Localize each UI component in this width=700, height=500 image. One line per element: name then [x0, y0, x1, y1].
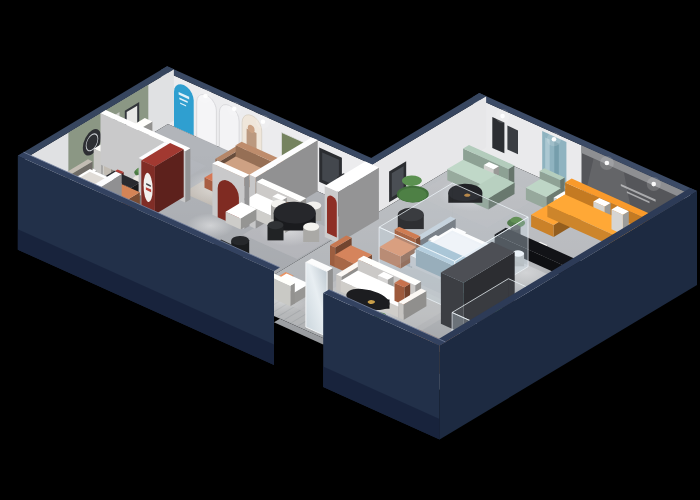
spotlight-glow	[232, 107, 237, 112]
white-sofa-arm-east-south	[398, 302, 403, 320]
blue-display-arch	[174, 84, 194, 135]
spotlight-glow	[203, 94, 208, 99]
red-arch-display	[327, 196, 337, 238]
terracotta-armchair-back-south	[330, 245, 335, 267]
floorplan-svg	[0, 0, 700, 500]
partition-tan-south-a-east	[185, 148, 190, 202]
spotlight-glow	[651, 182, 656, 187]
isometric-floorplan-scene: 3D isometric cutaway floor plan renderin…	[0, 0, 700, 500]
spotlight-glow	[605, 161, 610, 166]
frame-art-gray	[507, 126, 518, 155]
spotlight-glow	[261, 119, 266, 124]
spotlight-glow	[500, 114, 505, 119]
white-armchair-west-back-east	[290, 283, 295, 306]
spotlight-glow	[552, 137, 557, 142]
